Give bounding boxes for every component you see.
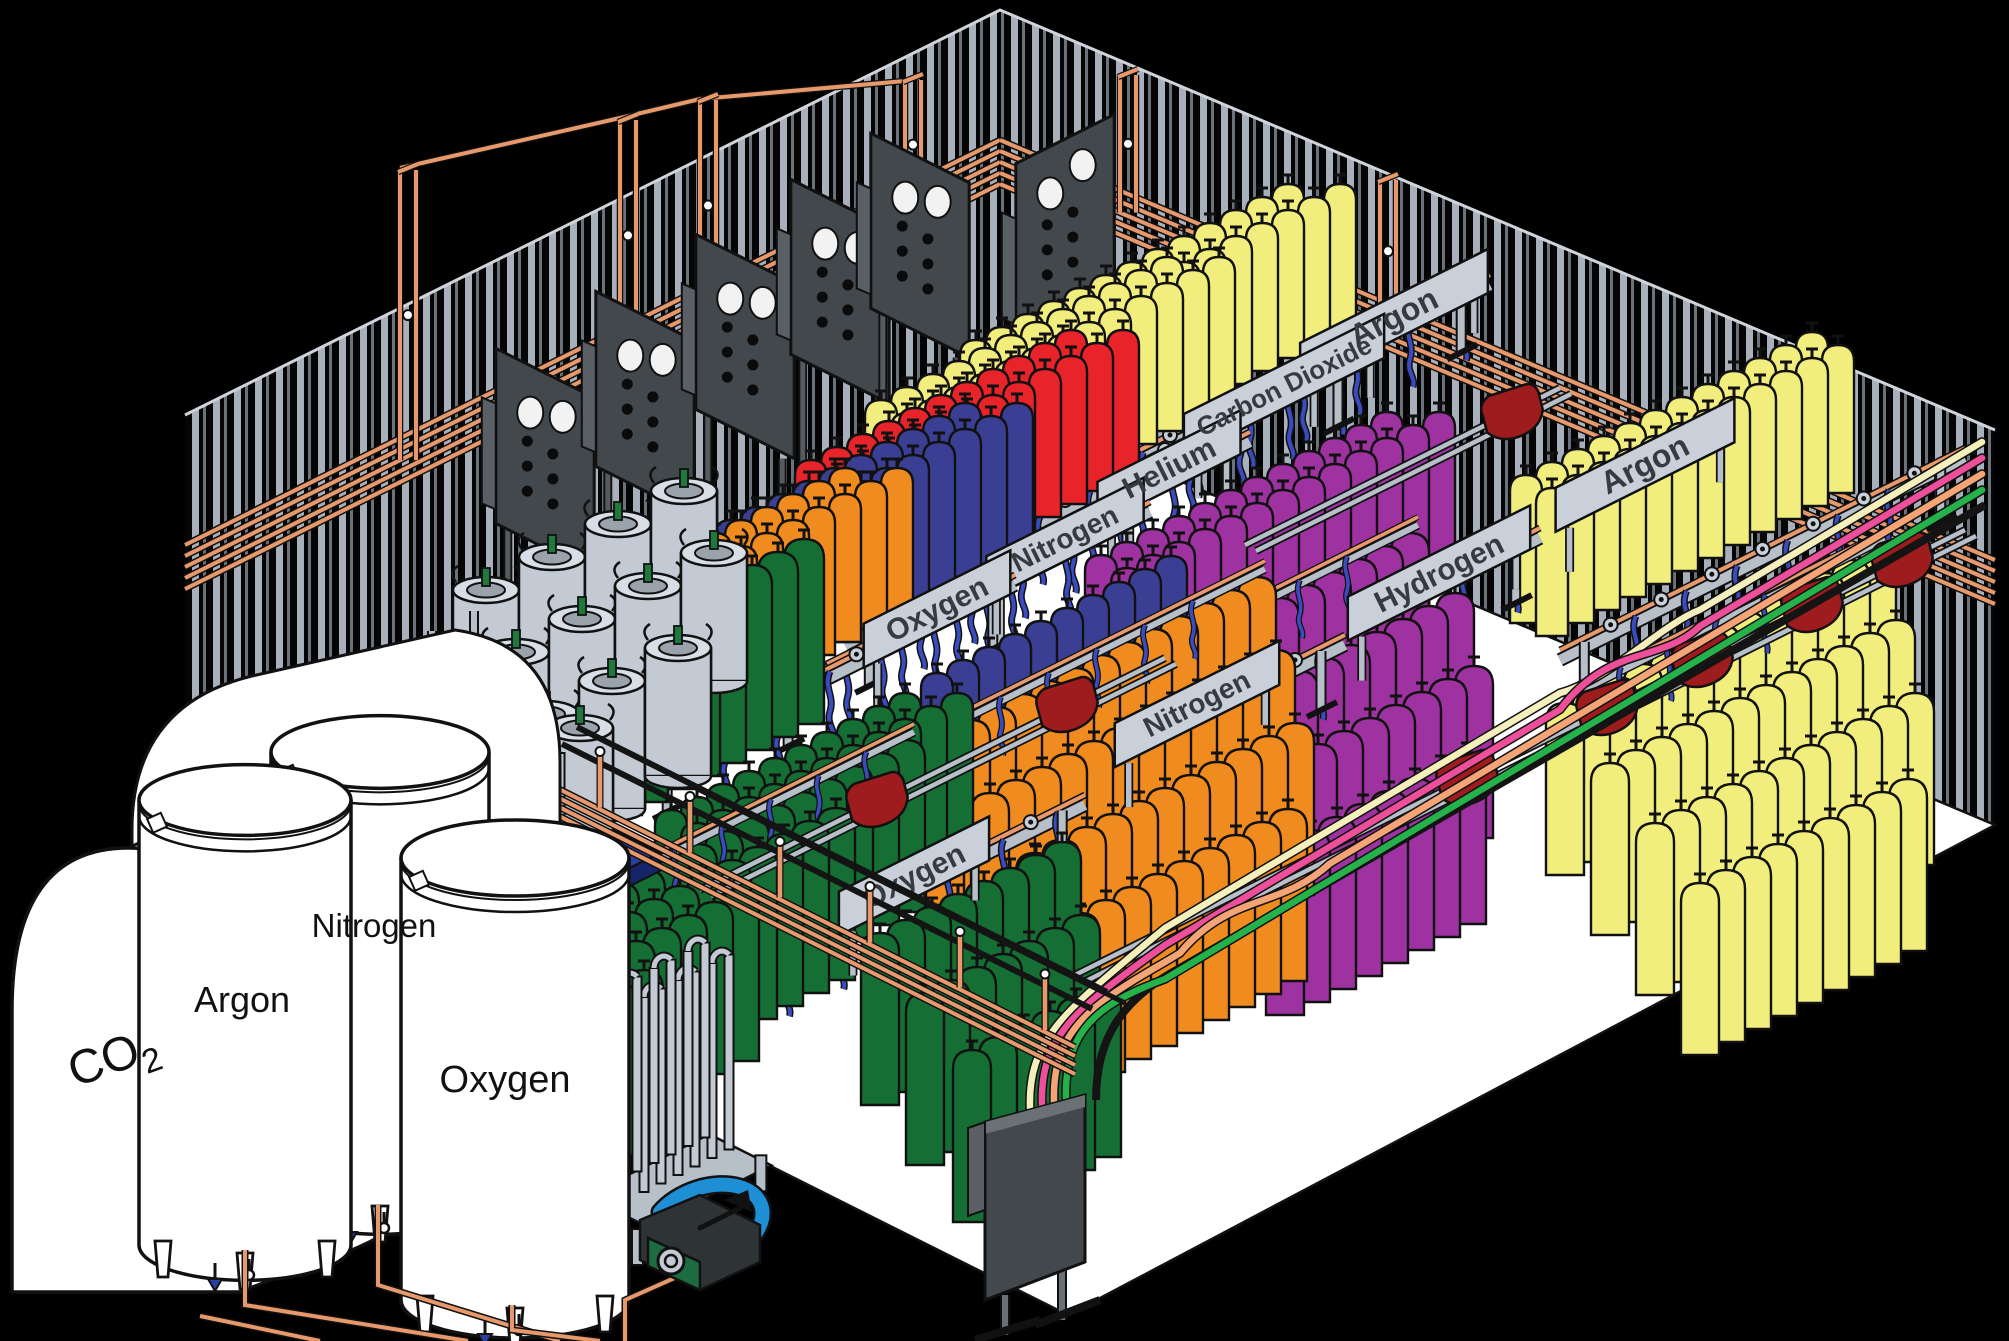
gas-plant-scene: Argon Carbon Dioxide Helium Nitrogen Oxy…	[0, 0, 2009, 1341]
argon-tank-label: Argon	[194, 979, 290, 1020]
plant-illustration: Argon Carbon Dioxide Helium Nitrogen Oxy…	[0, 0, 2009, 1341]
argon-tank	[139, 765, 351, 1291]
oxygen-tank-label: Oxygen	[440, 1059, 571, 1101]
nitrogen-tank-label: Nitrogen	[312, 907, 437, 944]
